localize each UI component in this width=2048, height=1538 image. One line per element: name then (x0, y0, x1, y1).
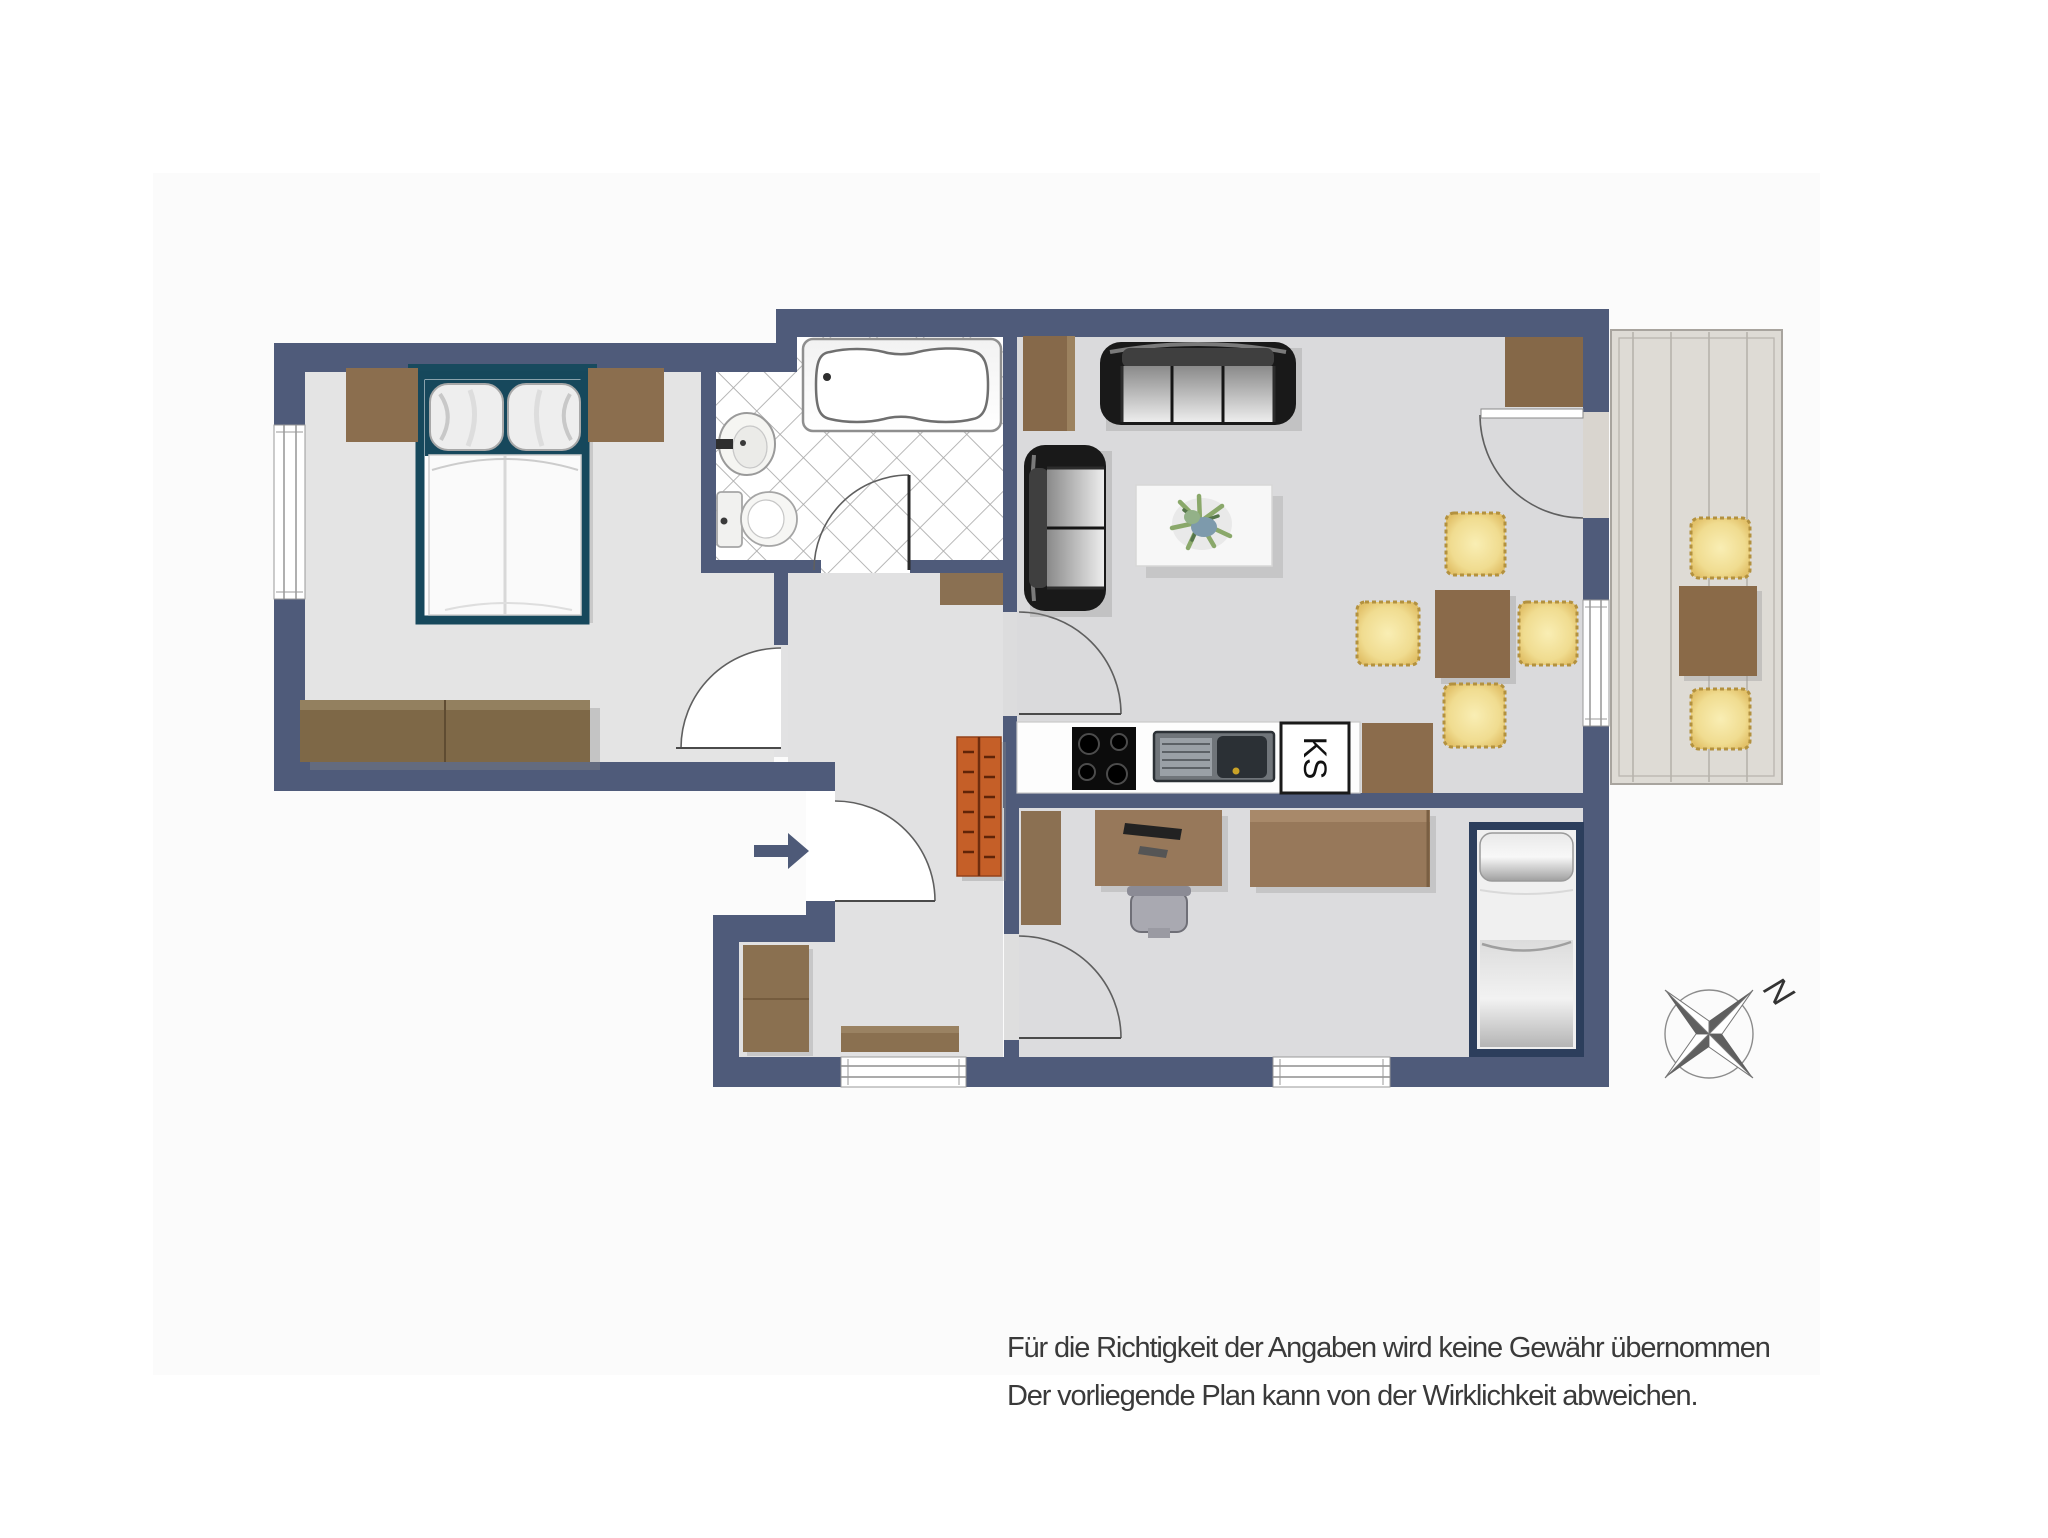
svg-text:KS: KS (1297, 737, 1333, 780)
svg-text:Der vorliegende Plan kann von: Der vorliegende Plan kann von der Wirkli… (1007, 1380, 1697, 1412)
svg-text:Für die Richtigkeit der Angabe: Für die Richtigkeit der Angaben wird kei… (1007, 1332, 1770, 1364)
